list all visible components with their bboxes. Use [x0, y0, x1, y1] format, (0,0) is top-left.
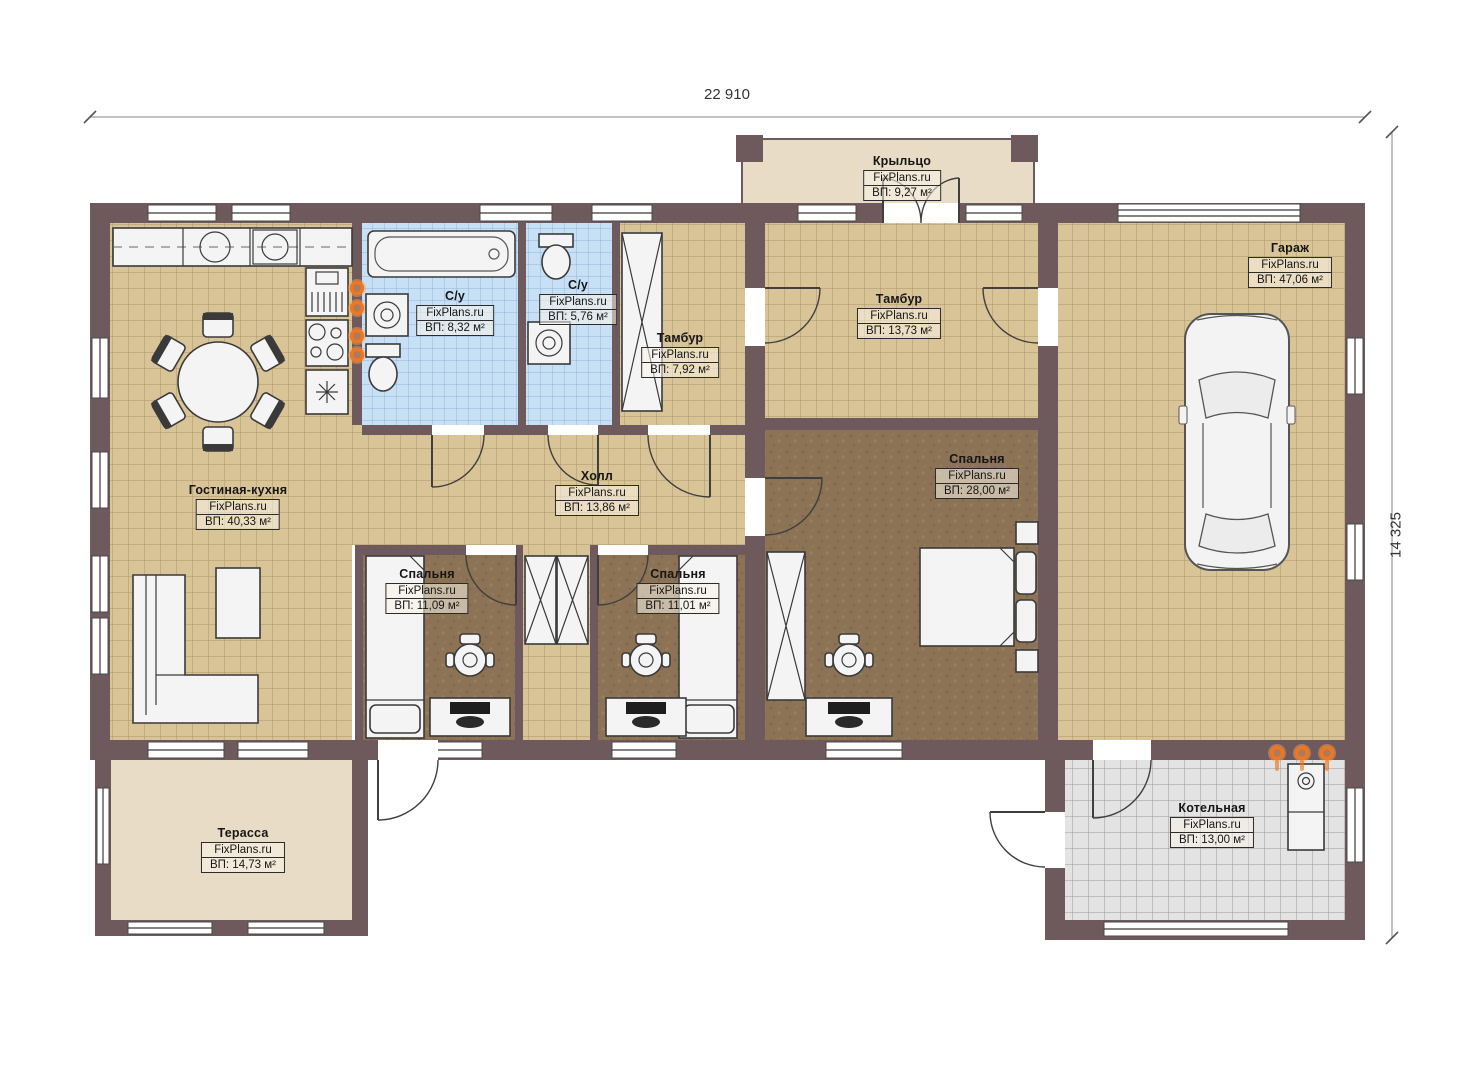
- room-brand: FixPlans.ru: [417, 306, 493, 321]
- room-label-terrace: Терасса FixPlans.ru ВП: 14,73 м²: [201, 826, 285, 873]
- room-name: Крыльцо: [863, 154, 941, 168]
- room-label-bathroom-2: С/у FixPlans.ru ВП: 5,76 м²: [539, 278, 617, 325]
- room-name: Гостиная-кухня: [189, 483, 288, 497]
- room-info-box: FixPlans.ru ВП: 13,86 м²: [555, 485, 639, 516]
- room-area: ВП: 11,01 м²: [637, 599, 718, 613]
- room-info-box: FixPlans.ru ВП: 7,92 м²: [641, 347, 719, 378]
- kitchen-appliance-column: [306, 268, 348, 414]
- bathtub: [368, 231, 515, 277]
- room-name: С/у: [416, 289, 494, 303]
- room-label-living-kitchen: Гостиная-кухня FixPlans.ru ВП: 40,33 м²: [189, 483, 288, 530]
- room-label-bedroom-3: Спальня FixPlans.ru ВП: 11,01 м²: [636, 567, 719, 614]
- room-brand: FixPlans.ru: [864, 171, 940, 186]
- room-info-box: FixPlans.ru ВП: 9,27 м²: [863, 170, 941, 201]
- room-info-box: FixPlans.ru ВП: 28,00 м²: [935, 468, 1019, 499]
- monitor: [450, 702, 490, 714]
- room-area: ВП: 14,73 м²: [202, 858, 284, 872]
- room-label-hall: Холл FixPlans.ru ВП: 13,86 м²: [555, 469, 639, 516]
- dimension-top-width: 22 910: [704, 86, 750, 103]
- room-name: Спальня: [636, 567, 719, 581]
- floor-plan-drawing: [0, 0, 1473, 1080]
- room-brand: FixPlans.ru: [858, 309, 940, 324]
- room-brand: FixPlans.ru: [556, 486, 638, 501]
- car: [1179, 314, 1295, 570]
- room-name: Тамбур: [857, 292, 941, 306]
- toilet-1: [366, 344, 400, 391]
- room-area: ВП: 13,00 м²: [1171, 833, 1253, 847]
- room-label-vestibule-small: Тамбур FixPlans.ru ВП: 7,92 м²: [641, 331, 719, 378]
- room-name: Спальня: [385, 567, 468, 581]
- monitor: [828, 702, 870, 714]
- room-brand: FixPlans.ru: [637, 584, 718, 599]
- room-info-box: FixPlans.ru ВП: 14,73 м²: [201, 842, 285, 873]
- washing-machine: [366, 294, 408, 336]
- boiler-unit: [1288, 764, 1324, 850]
- room-name: Холл: [555, 469, 639, 483]
- wardrobe-hall-2: [557, 556, 588, 644]
- room-brand: FixPlans.ru: [936, 469, 1018, 484]
- room-info-box: FixPlans.ru ВП: 8,32 м²: [416, 305, 494, 336]
- room-area: ВП: 11,09 м²: [386, 599, 467, 613]
- room-brand: FixPlans.ru: [642, 348, 718, 363]
- room-label-bathroom-1: С/у FixPlans.ru ВП: 8,32 м²: [416, 289, 494, 336]
- desk-bedroom-2: [430, 698, 510, 736]
- room-brand: FixPlans.ru: [540, 295, 616, 310]
- dining-table: [178, 342, 258, 422]
- room-info-box: FixPlans.ru ВП: 11,09 м²: [385, 583, 468, 614]
- room-name: Гараж: [1248, 241, 1332, 255]
- room-area: ВП: 47,06 м²: [1249, 273, 1331, 287]
- coffee-table: [216, 568, 260, 638]
- room-info-box: FixPlans.ru ВП: 11,01 м²: [636, 583, 719, 614]
- room-brand: FixPlans.ru: [1171, 818, 1253, 833]
- room-name: Терасса: [201, 826, 285, 840]
- room-label-bedroom-2: Спальня FixPlans.ru ВП: 11,09 м²: [385, 567, 468, 614]
- monitor: [626, 702, 666, 714]
- porch-pillar-left: [736, 135, 763, 162]
- wardrobe-master: [767, 552, 805, 700]
- wardrobe-vestibule: [622, 233, 662, 411]
- room-label-bedroom-master: Спальня FixPlans.ru ВП: 28,00 м²: [935, 452, 1019, 499]
- bathroom-2-washer: [528, 322, 570, 364]
- garage-door: [1118, 204, 1300, 222]
- room-area: ВП: 28,00 м²: [936, 484, 1018, 498]
- room-area: ВП: 8,32 м²: [417, 321, 493, 335]
- room-label-vestibule-main: Тамбур FixPlans.ru ВП: 13,73 м²: [857, 292, 941, 339]
- wardrobe-hall-1: [525, 556, 556, 644]
- desk-bedroom-3: [606, 698, 686, 736]
- dimension-right-height: 14 325: [1388, 512, 1405, 558]
- room-label-boiler-room: Котельная FixPlans.ru ВП: 13,00 м²: [1170, 801, 1254, 848]
- room-info-box: FixPlans.ru ВП: 40,33 м²: [196, 499, 280, 530]
- room-area: ВП: 13,73 м²: [858, 324, 940, 338]
- stove: [306, 320, 348, 366]
- room-info-box: FixPlans.ru ВП: 13,73 м²: [857, 308, 941, 339]
- room-area: ВП: 40,33 м²: [197, 515, 279, 529]
- room-name: Спальня: [935, 452, 1019, 466]
- nightstand-1: [1016, 522, 1038, 544]
- heating-icons-boiler: [1268, 744, 1336, 771]
- desk-master: [806, 698, 892, 736]
- room-label-porch: Крыльцо FixPlans.ru ВП: 9,27 м²: [863, 154, 941, 201]
- room-name: Котельная: [1170, 801, 1254, 815]
- floor-plan: 22 910 14 325 Крыльцо FixPlans.ru ВП: 9,…: [0, 0, 1473, 1080]
- porch-pillar-right: [1011, 135, 1038, 162]
- room-brand: FixPlans.ru: [386, 584, 467, 599]
- room-area: ВП: 9,27 м²: [864, 186, 940, 200]
- room-info-box: FixPlans.ru ВП: 13,00 м²: [1170, 817, 1254, 848]
- room-area: ВП: 5,76 м²: [540, 310, 616, 324]
- kitchen-counter: [113, 228, 352, 266]
- room-name: Тамбур: [641, 331, 719, 345]
- toilet-2: [539, 234, 573, 279]
- nightstand-2: [1016, 650, 1038, 672]
- room-info-box: FixPlans.ru ВП: 47,06 м²: [1248, 257, 1332, 288]
- room-name: С/у: [539, 278, 617, 292]
- room-brand: FixPlans.ru: [202, 843, 284, 858]
- room-area: ВП: 13,86 м²: [556, 501, 638, 515]
- room-info-box: FixPlans.ru ВП: 5,76 м²: [539, 294, 617, 325]
- room-area: ВП: 7,92 м²: [642, 363, 718, 377]
- room-label-garage: Гараж FixPlans.ru ВП: 47,06 м²: [1248, 241, 1332, 288]
- room-brand: FixPlans.ru: [1249, 258, 1331, 273]
- room-brand: FixPlans.ru: [197, 500, 279, 515]
